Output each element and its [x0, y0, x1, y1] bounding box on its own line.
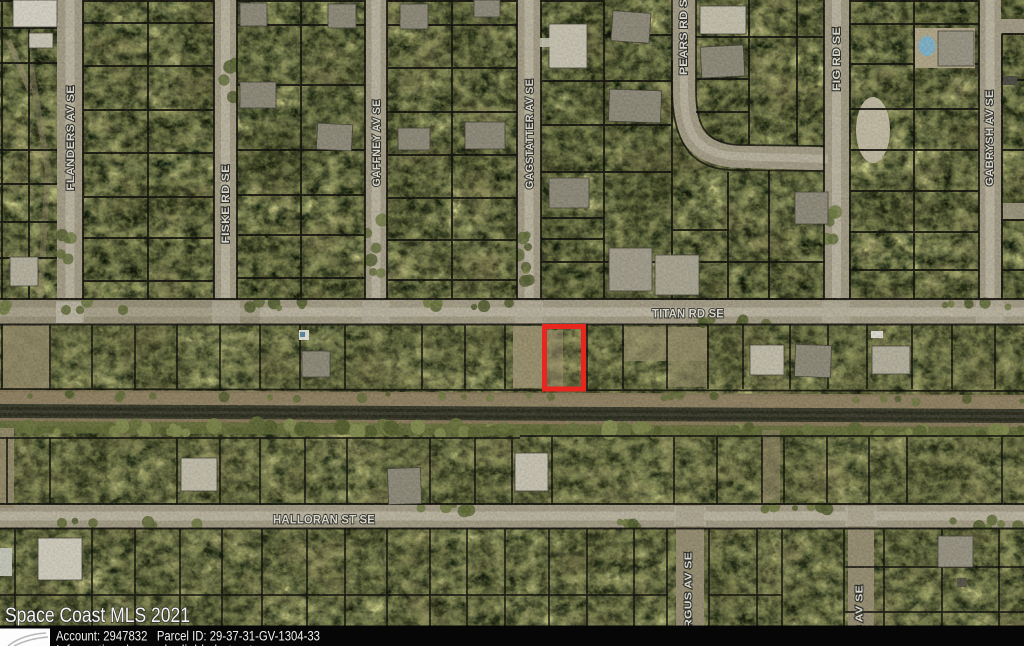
svg-text:Account: 2947832 Parcel ID:: Account: 2947832 Parcel ID: 29-37-31-GV-… — [56, 629, 320, 644]
svg-text:Space Coast MLS 2021: Space Coast MLS 2021 — [5, 603, 190, 627]
